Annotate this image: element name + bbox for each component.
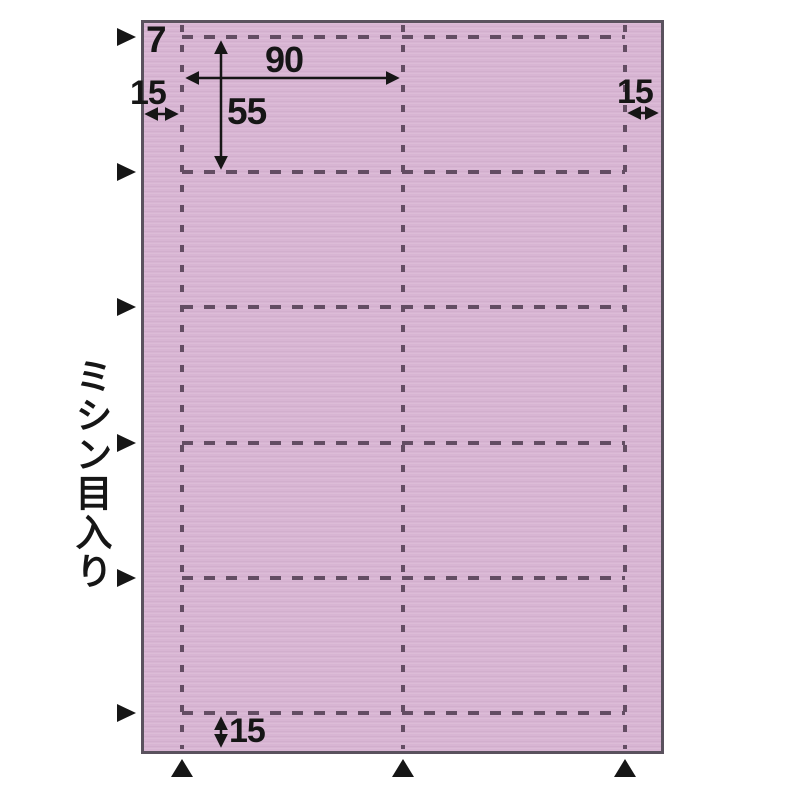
left-margin-label: 15	[130, 76, 166, 110]
perforated-sheet-diagram: 7 15 90 55 15 15 ミシン目入り	[0, 0, 800, 800]
top-margin-label: 7	[146, 21, 166, 58]
left-alignment-marker-4	[117, 434, 136, 452]
left-alignment-marker-6	[117, 704, 136, 722]
bottom-alignment-marker-2	[392, 759, 414, 777]
bottom-alignment-marker-3	[614, 759, 636, 777]
perforation-note: ミシン目入り	[72, 357, 109, 591]
sheet	[141, 20, 664, 754]
card-height-label: 55	[227, 93, 266, 130]
bottom-margin-label: 15	[229, 714, 265, 748]
left-alignment-marker-3	[117, 298, 136, 316]
left-alignment-marker-2	[117, 163, 136, 181]
card-width-label: 90	[265, 42, 303, 78]
right-margin-label: 15	[617, 75, 653, 109]
left-alignment-marker-1	[117, 28, 136, 46]
bottom-alignment-marker-1	[171, 759, 193, 777]
left-alignment-marker-5	[117, 569, 136, 587]
